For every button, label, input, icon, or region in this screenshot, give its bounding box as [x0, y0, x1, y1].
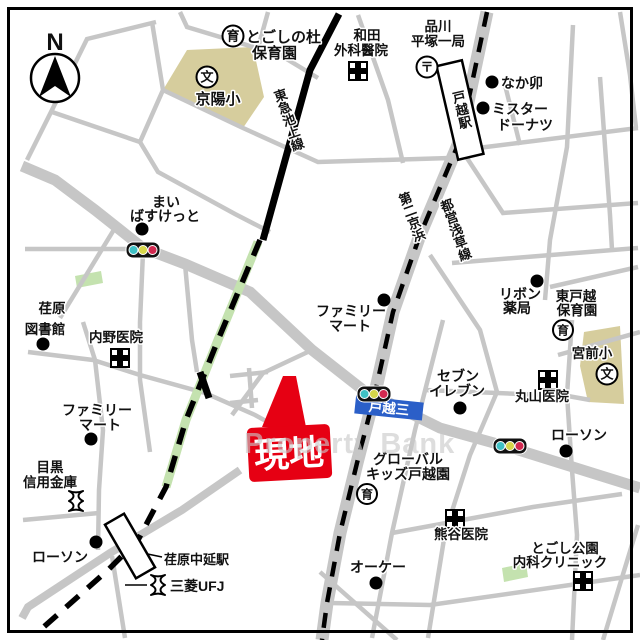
poi-dot-mister-donut: [477, 102, 490, 115]
svg-text:育: 育: [557, 323, 569, 338]
poi-dot-nakau: [486, 76, 499, 89]
label-togoshi-mori-2: 保育園: [251, 44, 297, 62]
label-meguro-shinkin: 目黒: [37, 460, 64, 475]
compass-n-label: N: [46, 29, 63, 56]
label-kumagai-clinic: 熊谷医院: [434, 526, 488, 542]
label-miyamae-sho: 宮前小: [572, 345, 613, 361]
label-nakau: なか卯: [501, 75, 543, 91]
label-shinagawa-post-2: 平塚一局: [411, 34, 465, 49]
label-wada-2: 外科醫院: [334, 42, 388, 58]
svg-text:文: 文: [200, 70, 214, 85]
label-maibasket-2: ばすけっと: [130, 208, 200, 224]
label-togoshi-park-clinic-2: 内科クリニック: [513, 554, 608, 570]
svg-text:〒: 〒: [420, 60, 433, 75]
hospital-cross-icon: [574, 572, 592, 590]
traffic-light-icon: [493, 438, 527, 454]
label-famima-center-2: マート: [329, 318, 371, 334]
map-page: 戸越駅: [0, 0, 640, 640]
poi-dot-maibasket: [136, 223, 149, 236]
label-togoshi-park-clinic: とごし公園: [531, 540, 599, 556]
label-lawson-left: ローソン: [32, 549, 88, 565]
post-office-icon: 〒: [417, 57, 438, 78]
label-mister-donut-2: ドーナツ: [497, 117, 553, 133]
poi-dot-seven-eleven: [454, 402, 467, 415]
label-ebara-nakanobu-station: 荏原中延駅: [164, 552, 230, 567]
label-higashi-togoshi: 東戸越: [556, 288, 597, 304]
hospital-cross-icon: [349, 62, 367, 80]
svg-text:育: 育: [226, 29, 239, 44]
label-mitsubishi-ufj: 三菱UFJ: [170, 578, 224, 594]
svg-text:文: 文: [600, 367, 614, 382]
label-ebara-library: 荏原: [39, 300, 66, 316]
label-mister-donut: ミスター: [492, 101, 548, 117]
label-famima-center: ファミリー: [316, 303, 386, 319]
label-global-kids-2: キッズ戸越園: [366, 466, 450, 482]
label-wada: 和田: [354, 28, 381, 43]
nursery-icon: 育: [357, 484, 377, 504]
label-seven-eleven-2: イレブン: [429, 383, 485, 399]
label-lawson-right: ローソン: [551, 427, 607, 443]
label-ribbon-pharmacy-2: 薬局: [503, 300, 531, 316]
label-higashi-togoshi-2: 保育園: [556, 302, 598, 318]
school-icon: 文: [597, 364, 618, 385]
label-famima-left-2: マート: [79, 417, 121, 433]
label-uchino-clinic: 内野医院: [89, 329, 143, 345]
svg-text:育: 育: [361, 487, 373, 502]
label-togoshi-mori: とごしの杜: [246, 28, 321, 46]
road-segment: [249, 368, 252, 408]
nursery-icon: 育: [553, 320, 573, 340]
watermark-text: Property Bank: [244, 428, 455, 460]
label-maruyama-clinic: 丸山医院: [514, 388, 569, 404]
label-keiyo-sho: 京陽小: [195, 90, 240, 108]
traffic-light-icon: [357, 386, 391, 402]
hospital-cross-icon: [539, 371, 557, 389]
poi-dot-ok-store: [370, 577, 383, 590]
poi-dot-famima-left: [85, 433, 98, 446]
map-canvas: 戸越駅: [0, 0, 640, 640]
hospital-cross-icon: [446, 510, 464, 528]
poi-dot-lawson-right: [560, 445, 573, 458]
label-ebara-library-2: 図書館: [25, 321, 66, 337]
poi-dot-lawson-left: [90, 536, 103, 549]
traffic-light-icon: [126, 242, 160, 258]
label-ok-store: オーケー: [350, 559, 406, 575]
poi-dot-ebara-library: [37, 338, 50, 351]
label-seven-eleven: セブン: [437, 368, 479, 384]
nursery-icon: 育: [223, 26, 244, 47]
label-shinagawa-post: 品川: [425, 19, 452, 34]
school-icon: 文: [197, 67, 218, 88]
label-meguro-shinkin-2: 信用金庫: [23, 474, 77, 490]
label-famima-left: ファミリー: [62, 402, 132, 418]
hospital-cross-icon: [111, 349, 129, 367]
